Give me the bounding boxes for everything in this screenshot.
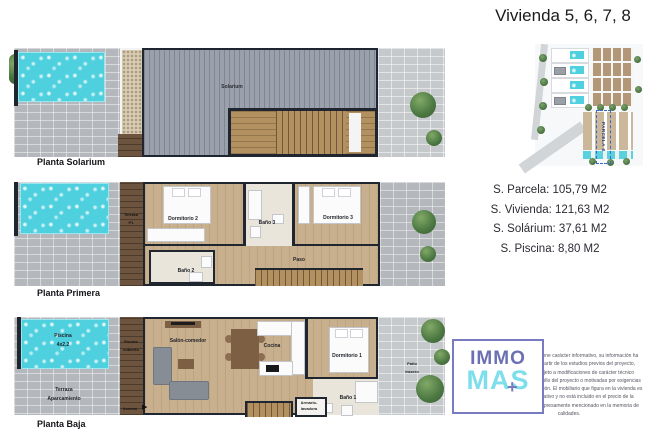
dining-table [231, 329, 259, 369]
tree-icon [621, 104, 628, 111]
tree-icon [421, 319, 445, 343]
pool-below [20, 183, 109, 234]
siteplan-roof-row [591, 78, 633, 91]
tree-icon [540, 78, 548, 86]
measurement-solarium: S. Solárium: 37,61 M2 [480, 223, 620, 243]
tree-icon [412, 210, 436, 234]
tree-icon [634, 56, 641, 63]
room-label-bano3: Baño 3 [259, 220, 276, 226]
siteplan-unit [551, 78, 589, 93]
measurement-vivienda: S. Vivienda: 121,63 M2 [480, 204, 620, 224]
primera-stairs [255, 268, 363, 286]
stair-landing [349, 113, 361, 152]
room-label-acceso: Acceso [123, 406, 137, 411]
measurement-piscina: S. Piscina: 8,80 M2 [480, 243, 620, 263]
corridor-wall [145, 244, 244, 246]
toilet [201, 256, 212, 268]
room-label-dormitorio3: Dormitorio 3 [323, 215, 353, 221]
bed [329, 327, 369, 373]
bano2-room [149, 250, 215, 284]
room-label-terraza-p1: Terraza [124, 212, 138, 217]
siteplan-unit [551, 48, 589, 63]
tree-icon [420, 246, 436, 262]
wardrobe [147, 228, 205, 242]
plan-primera: Terraza P1 [14, 182, 445, 286]
bathtub [248, 190, 262, 220]
room-label-piscina: Piscina [54, 333, 72, 339]
side-pavers [380, 182, 445, 286]
page-title: Vivienda 5, 6, 7, 8 [463, 6, 648, 26]
closet [298, 186, 310, 224]
bano3-room [246, 184, 292, 246]
room-label-dormitorio2: Dormitorio 2 [168, 216, 198, 222]
tree-icon [623, 158, 630, 165]
tree-icon [537, 126, 545, 134]
tv-sideboard [165, 321, 201, 328]
room-label-aparcamiento: Aparcamiento [47, 396, 80, 402]
toilet [341, 405, 353, 416]
entrance-arrow-icon: ▶ [142, 403, 147, 411]
baja-stairs [245, 401, 293, 417]
solarium-stairs [228, 108, 378, 157]
measurement-parcela: S. Parcela: 105,79 M2 [480, 184, 620, 204]
shower [355, 381, 378, 403]
pool-side-wall [14, 182, 18, 236]
immomas-logo: IMMO MAS + [452, 339, 544, 414]
room-label-solarium: Solarium [221, 84, 242, 90]
logo-plus-icon: + [507, 377, 518, 398]
terraza-p1-deck [120, 182, 143, 286]
room-label-piscina-size: 4x2,2 [57, 342, 70, 348]
room-label-cocina: Cocina [264, 343, 281, 349]
room-label-bano2: Baño 2 [178, 268, 195, 274]
room-label-lavadora: lavadora [301, 406, 317, 411]
brochure-page: Vivienda 5, 6, 7, 8 Solarium Planta Sola… [0, 0, 648, 439]
room-label-armario: Armario- [301, 400, 318, 405]
highlighted-parcel: PARCELA 8 [596, 110, 611, 164]
tree-icon [426, 130, 442, 146]
plan-title-baja: Planta Baja [37, 419, 86, 429]
room-label-terraza: Terraza [55, 387, 72, 393]
cooktop [266, 365, 279, 372]
kitchen-island [259, 361, 293, 376]
sofa [169, 381, 209, 400]
sofa [153, 347, 172, 385]
room-label-paso: Paso [293, 257, 305, 263]
corridor-wall [292, 244, 378, 246]
car-icon [554, 67, 566, 75]
plan-title-primera: Planta Primera [37, 288, 100, 298]
tree-icon [585, 104, 592, 111]
tree-icon [589, 158, 596, 165]
gravel-strip [120, 48, 144, 142]
room-label-dormitorio1: Dormitorio 1 [332, 353, 362, 359]
siteplan-roof-row [591, 48, 633, 61]
room-label-salon: Salón-comedor [170, 338, 206, 344]
logo-text-mas: MAS [454, 365, 542, 396]
surface-measurements: S. Parcela: 105,79 M2 S. Vivienda: 121,6… [480, 184, 620, 262]
solarium-pool [18, 52, 105, 102]
kitchen-counter [291, 321, 305, 375]
room-label-bano1: Baño 1 [340, 395, 357, 401]
room-label-trasero: trasero [405, 369, 419, 374]
tree-icon [410, 92, 436, 118]
tree-icon [635, 86, 642, 93]
plan-baja: Piscina 4x2,2 Terraza Aparcamiento Porch… [14, 317, 445, 415]
tree-icon [416, 375, 444, 403]
plan-solarium: Solarium [14, 48, 445, 157]
room-label-patio: Patio [407, 361, 417, 366]
room-label-porche: Porche [124, 339, 138, 344]
tree-icon [539, 54, 547, 62]
partition-wall [305, 319, 308, 379]
tree-icon [434, 349, 450, 365]
plan-title-solarium: Planta Solarium [37, 157, 105, 167]
tree-icon [539, 102, 547, 110]
toilet [250, 226, 261, 238]
siteplan: PARCELA 8 [535, 44, 643, 166]
room-label-terraza-p1-line2: P1 [129, 220, 134, 225]
road [519, 121, 587, 173]
siteplan-unit [551, 93, 589, 108]
siteplan-unit [551, 63, 589, 78]
siteplan-roof-row [591, 63, 633, 76]
car-icon [554, 97, 566, 105]
parcel-label: PARCELA 8 [601, 122, 606, 152]
coffee-table [178, 359, 194, 369]
stair-treads [276, 111, 346, 154]
porche-deck [120, 317, 143, 415]
room-label-cubierto: cubierto [123, 347, 139, 352]
partition-wall [292, 184, 295, 246]
